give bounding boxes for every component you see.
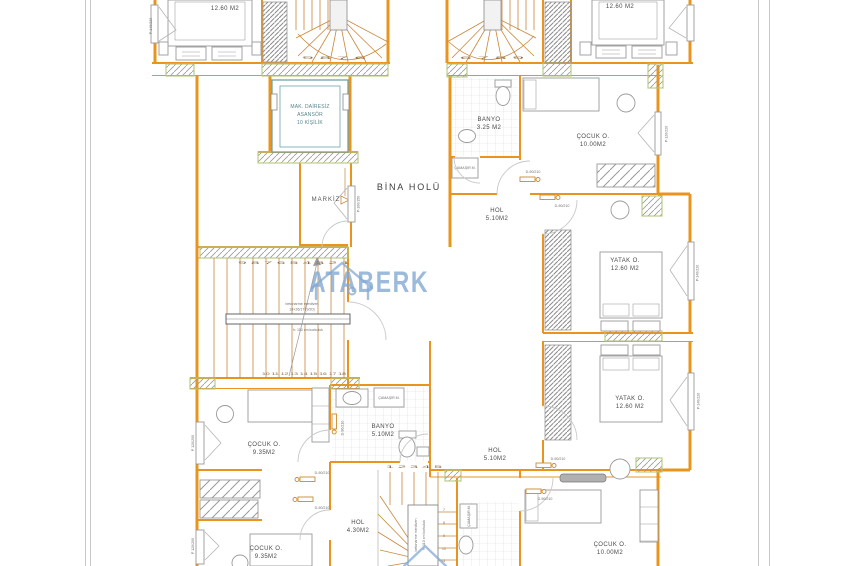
door-label: D-90/210 bbox=[341, 421, 345, 436]
label-yatak-upper-area: 12.60 M2 bbox=[611, 266, 639, 272]
stair-winder-left-numbers: 9 8 7 6 bbox=[302, 56, 367, 60]
elevator-label-line2: ASANSÖR bbox=[297, 111, 323, 118]
window-cocuk-left-upper bbox=[196, 422, 204, 464]
doors: D-90/210 D-90/210 D-90/210 D-90/210 D-90… bbox=[293, 157, 577, 540]
window-label-yl: P-140/220 bbox=[697, 393, 701, 410]
door-leaf bbox=[540, 195, 555, 200]
floorplan-drawing: MAK. DAİRESİZ ASANSÖR 10 KİŞİLİK 9 8 7 6… bbox=[0, 0, 850, 566]
door-leaf bbox=[520, 177, 535, 182]
door-leaf bbox=[300, 477, 315, 482]
stair-main-bottom-numbers: 10 11 12 13 14 15 16 17 18 bbox=[262, 372, 346, 376]
stair-note-line3: h: 110 cm korkuluk bbox=[293, 328, 323, 332]
door-label: D-90/210 bbox=[315, 471, 330, 475]
door-label: D-90/210 bbox=[538, 497, 553, 501]
bathroom-floors bbox=[332, 78, 519, 566]
label-hol-upper-area: 5.10M2 bbox=[486, 216, 509, 222]
stair-main-top-numbers: 9 8 7 6 5 4 3 2 1 bbox=[238, 261, 350, 265]
label-cocuk-ur-name: ÇOCUK O. bbox=[577, 134, 610, 140]
door-leaf bbox=[332, 414, 337, 429]
washer-bottom-label: ÇAMAŞIR M. bbox=[467, 505, 471, 526]
label-cocuk-br-area: 10.00M2 bbox=[597, 550, 623, 556]
label-bina-holu: BİNA HOLÜ bbox=[377, 182, 441, 192]
door-leaf bbox=[526, 489, 541, 494]
elevator-label-line3: 10 KİŞİLİK bbox=[297, 119, 323, 126]
bed-cocuk-left-upper bbox=[248, 390, 312, 422]
stair-bottom-note1: betonarme merdiven bbox=[414, 519, 418, 552]
label-cocuk-lu-area: 9.35M2 bbox=[253, 450, 276, 456]
window-label-markiz: P-100/150 bbox=[357, 196, 361, 213]
door-label: D-90/210 bbox=[555, 204, 570, 208]
window-label-clu: P 120/200 bbox=[191, 435, 195, 451]
label-banyo-upper-name: BANYO bbox=[477, 117, 500, 123]
label-cocuk-br-name: ÇOCUK O. bbox=[594, 542, 627, 548]
label-bed-top-left: 12.60 M2 bbox=[211, 6, 239, 12]
stair-winder-right: 6 7 8 9 bbox=[447, 0, 536, 62]
bed-yatak-lower bbox=[600, 356, 662, 422]
washer-lower-label: ÇAMAŞIR M. bbox=[378, 396, 399, 400]
label-cocuk-lu-name: ÇOCUK O. bbox=[248, 442, 281, 448]
label-banyo-lower-area: 5.10M2 bbox=[372, 432, 395, 438]
window-label-tl: P-140/220 bbox=[149, 18, 153, 35]
floorplan-sheet: MAK. DAİRESİZ ASANSÖR 10 KİŞİLİK 9 8 7 6… bbox=[0, 0, 850, 566]
stair-bottom-n9: 9 bbox=[443, 534, 445, 538]
stair-winder-left: 9 8 7 6 bbox=[263, 0, 388, 62]
window-label-cur: P-120/220 bbox=[665, 126, 669, 143]
label-banyo-lower-name: BANYO bbox=[371, 424, 394, 430]
label-banyo-upper-area: 3.25 M2 bbox=[477, 125, 502, 131]
sink-upper bbox=[459, 130, 476, 143]
bed-cocuk-upper-right bbox=[523, 78, 599, 111]
label-hol-upper-name: HOL bbox=[490, 208, 504, 214]
label-bed-top-right: 12.60 M2 bbox=[606, 4, 634, 10]
stair-note-line1: betonarme merdiven bbox=[286, 302, 319, 306]
stair-bottom-n7: 7 bbox=[443, 508, 445, 512]
window-yatak-upper bbox=[688, 242, 694, 300]
window-cocuk-left-lower bbox=[196, 530, 204, 564]
watermark-text: ATABERK bbox=[309, 266, 429, 299]
stair-note-line2: 18×26/17 (9/20) bbox=[289, 308, 314, 312]
stair-winder-right-numbers: 6 7 8 9 bbox=[460, 56, 525, 60]
label-yatak-lower-name: YATAK O. bbox=[615, 396, 645, 402]
label-hol-lower-area: 5.10M2 bbox=[484, 456, 507, 462]
sink-bottom bbox=[459, 536, 473, 554]
label-cocuk-ur-area: 10.00M2 bbox=[580, 142, 606, 148]
door-leaf bbox=[536, 463, 551, 468]
door-label: D-90/210 bbox=[551, 457, 566, 461]
stair-bottom-n8: 8 bbox=[443, 521, 445, 525]
window-yatak-lower bbox=[688, 373, 694, 430]
label-cocuk-ll-area: 9.35M2 bbox=[255, 554, 278, 560]
door-label: D-90/210 bbox=[315, 506, 330, 510]
label-yatak-lower-area: 12.60 M2 bbox=[616, 404, 644, 410]
sink-lower bbox=[343, 392, 361, 405]
toilet-upper bbox=[496, 87, 510, 106]
elevator: MAK. DAİRESİZ ASANSÖR 10 KİŞİLİK bbox=[271, 80, 349, 152]
window-cocuk-upper-right bbox=[655, 112, 661, 155]
label-yatak-upper-name: YATAK O. bbox=[610, 258, 640, 264]
window-top-right bbox=[687, 5, 694, 41]
window-markiz bbox=[348, 186, 355, 222]
label-markiz: MARKİZ bbox=[312, 196, 341, 203]
label-cocuk-ll-name: ÇOCUK O. bbox=[250, 546, 283, 552]
door-leaf bbox=[298, 497, 313, 502]
window-label-yu: P-140/220 bbox=[696, 265, 700, 282]
desk bbox=[560, 474, 606, 482]
stair-bottom-top-numbers: 1 2 3 4 5 bbox=[386, 465, 442, 469]
window-label-cll: P 120/200 bbox=[191, 538, 195, 554]
stair-bottom-n10: 10 bbox=[442, 547, 446, 551]
label-hol-bottom-area: 4.30M2 bbox=[347, 528, 370, 534]
door-label: D-90/210 bbox=[526, 170, 541, 174]
label-hol-lower-name: HOL bbox=[488, 448, 502, 454]
elevator-label-line1: MAK. DAİRESİZ bbox=[290, 103, 329, 110]
label-hol-bottom-name: HOL bbox=[351, 520, 365, 526]
